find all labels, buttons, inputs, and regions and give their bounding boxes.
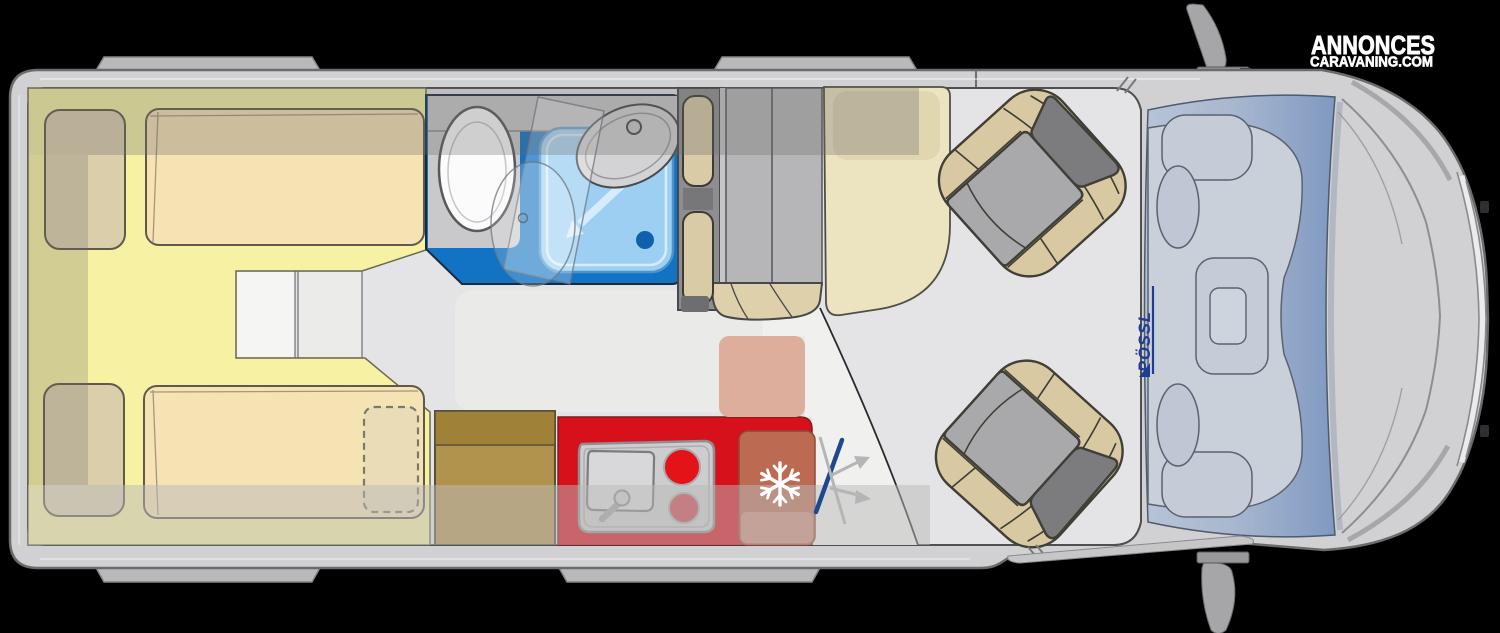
svg-text:PÖSSL: PÖSSL [1135, 311, 1154, 372]
svg-text:CARAVANING.COM: CARAVANING.COM [1310, 55, 1433, 71]
